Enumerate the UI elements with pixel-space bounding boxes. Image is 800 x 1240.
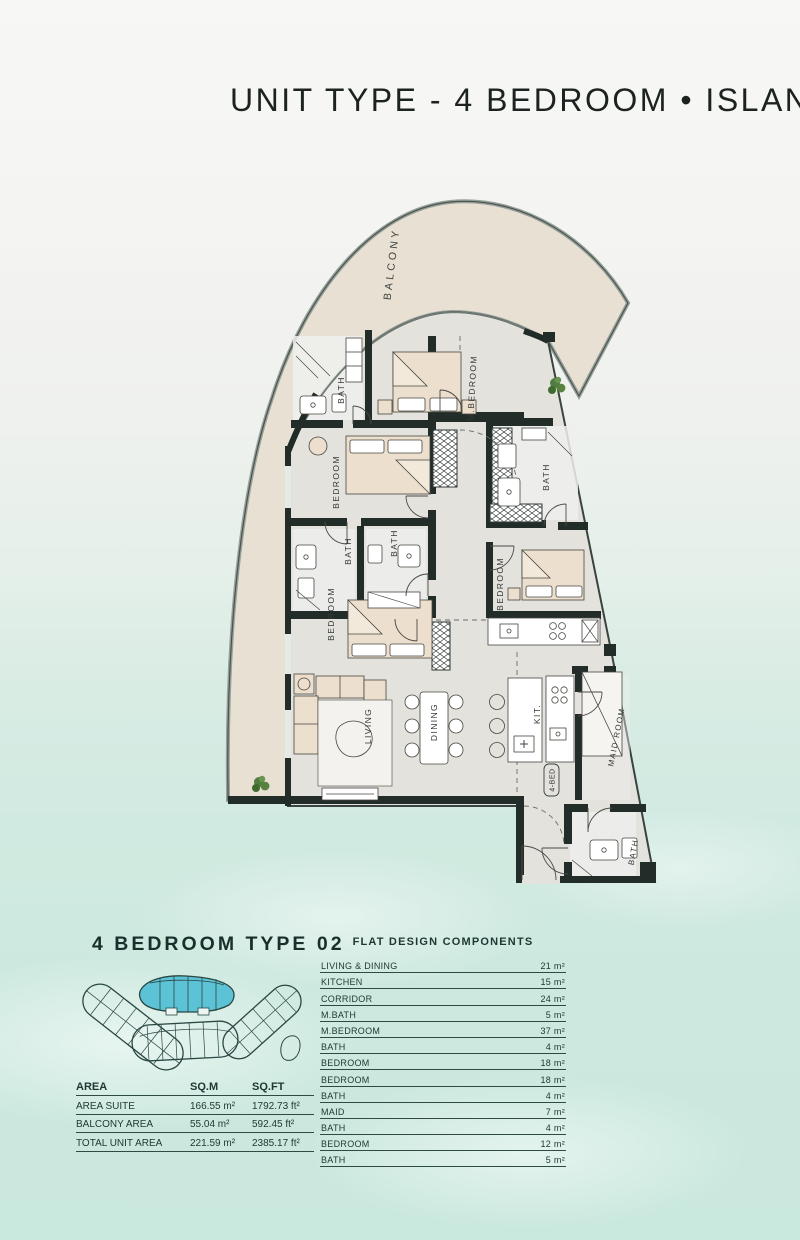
row-label: BALCONY AREA <box>76 1119 190 1130</box>
label-kitchen: KIT. <box>532 704 542 724</box>
row-value: 18 m² <box>540 1058 565 1068</box>
svg-text:4-BED: 4-BED <box>550 768 557 791</box>
key-plan-heading: 4 BEDROOM TYPE 02 <box>92 933 345 956</box>
key-plan-highlighted-building <box>140 976 235 1015</box>
label-bedroom-upper: BEDROOM <box>331 455 341 509</box>
table-row: BALCONY AREA 55.04 m² 592.45 ft² <box>76 1115 314 1134</box>
row-sqm: 166.55 m² <box>190 1101 252 1112</box>
row-label: BEDROOM <box>321 1139 370 1149</box>
row-label: BEDROOM <box>321 1075 370 1085</box>
row-label: BEDROOM <box>321 1058 370 1068</box>
label-dining: DINING <box>429 703 439 741</box>
label-living: LIVING <box>363 708 373 744</box>
area-header-sqft: SQ.FT <box>252 1081 314 1093</box>
table-row: CORRIDOR24 m² <box>320 989 566 1005</box>
table-row: BEDROOM18 m² <box>320 1070 566 1086</box>
row-value: 4 m² <box>546 1123 565 1133</box>
row-value: 4 m² <box>546 1042 565 1052</box>
label-bath-right: BATH <box>541 463 551 491</box>
table-row: BATH5 m² <box>320 1151 566 1167</box>
table-row: MAID7 m² <box>320 1103 566 1119</box>
table-row: M.BEDROOM37 m² <box>320 1022 566 1038</box>
components-table-title: FLAT DESIGN COMPONENTS <box>320 936 566 948</box>
key-plan-islet <box>281 1036 300 1061</box>
table-row: AREA SUITE 166.55 m² 1792.73 ft² <box>76 1096 314 1115</box>
row-value: 5 m² <box>546 1155 565 1165</box>
row-label: CORRIDOR <box>321 994 372 1004</box>
row-value: 12 m² <box>540 1139 565 1149</box>
row-value: 7 m² <box>546 1107 565 1117</box>
row-value: 5 m² <box>546 1010 565 1020</box>
label-bath-mid-left: BATH <box>343 537 353 565</box>
unit-tag: 4-BED <box>544 764 559 796</box>
area-header-label: AREA <box>76 1081 190 1093</box>
row-label: BATH <box>321 1042 346 1052</box>
row-sqft: 2385.17 ft² <box>252 1138 314 1149</box>
table-row: LIVING & DINING21 m² <box>320 957 566 973</box>
floor-plan: 4-BED BALCONY M.BEDROOM BATH BEDROOM BAT… <box>228 201 656 884</box>
row-sqm: 221.59 m² <box>190 1138 252 1149</box>
table-row: BATH4 m² <box>320 1119 566 1135</box>
table-row: BATH4 m² <box>320 1038 566 1054</box>
label-bedroom-lower: BEDROOM <box>326 587 336 641</box>
brochure-page: UNIT TYPE - 4 BEDROOM • ISLAND <box>0 0 800 1240</box>
row-label: KITCHEN <box>321 977 363 987</box>
row-label: M.BATH <box>321 1010 356 1020</box>
label-bath-mid-right: BATH <box>389 529 399 557</box>
row-sqm: 55.04 m² <box>190 1119 252 1130</box>
row-value: 4 m² <box>546 1091 565 1101</box>
table-row: M.BATH5 m² <box>320 1006 566 1022</box>
label-bedroom-right: BEDROOM <box>495 557 505 611</box>
row-label: TOTAL UNIT AREA <box>76 1138 190 1149</box>
row-value: 24 m² <box>540 994 565 1004</box>
area-table: AREA SQ.M SQ.FT AREA SUITE 166.55 m² 179… <box>76 1076 314 1152</box>
key-plan <box>76 976 308 1077</box>
row-label: BATH <box>321 1155 346 1165</box>
table-row: BATH4 m² <box>320 1087 566 1103</box>
row-label: BATH <box>321 1123 346 1133</box>
row-label: BATH <box>321 1091 346 1101</box>
row-value: 37 m² <box>540 1026 565 1036</box>
table-row: KITCHEN15 m² <box>320 973 566 989</box>
row-sqft: 592.45 ft² <box>252 1119 314 1130</box>
area-table-header: AREA SQ.M SQ.FT <box>76 1076 314 1096</box>
label-m-bath: BATH <box>336 376 346 404</box>
table-row: BEDROOM12 m² <box>320 1135 566 1151</box>
table-row: TOTAL UNIT AREA 221.59 m² 2385.17 ft² <box>76 1133 314 1152</box>
row-sqft: 1792.73 ft² <box>252 1101 314 1112</box>
row-label: M.BEDROOM <box>321 1026 380 1036</box>
row-label: AREA SUITE <box>76 1101 190 1112</box>
row-label: MAID <box>321 1107 345 1117</box>
components-table: FLAT DESIGN COMPONENTS LIVING & DINING21… <box>320 936 566 1167</box>
row-value: 21 m² <box>540 961 565 971</box>
table-row: BEDROOM18 m² <box>320 1054 566 1070</box>
row-label: LIVING & DINING <box>321 961 398 971</box>
area-header-sqm: SQ.M <box>190 1081 252 1093</box>
row-value: 15 m² <box>540 977 565 987</box>
row-value: 18 m² <box>540 1075 565 1085</box>
